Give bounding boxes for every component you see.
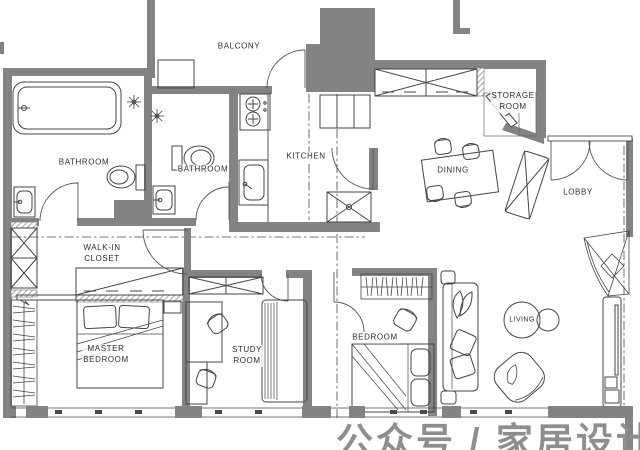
- tv-console: [603, 297, 621, 407]
- door-entrance-left: [551, 141, 590, 180]
- living-sofa: [441, 271, 478, 404]
- wall-column-shaft-b: [306, 44, 322, 92]
- door-master-bathroom: [40, 182, 78, 221]
- door-entrance-right: [589, 141, 628, 180]
- study-daybed: [262, 300, 307, 402]
- coffee-table-large: [504, 302, 540, 338]
- dining-chair: [462, 142, 480, 160]
- bedroom-chair: [392, 306, 419, 333]
- master-bed: [77, 300, 163, 388]
- wall-lobby-right: [626, 138, 633, 237]
- walls: [0, 0, 633, 418]
- wall-left-top-tick: [0, 42, 4, 54]
- dining-wardrobe: [375, 69, 477, 96]
- plan-drawing: [0, 0, 640, 450]
- dining-table: [421, 150, 498, 202]
- storage-door-leaf: [486, 93, 517, 127]
- dash-dot-reference-lines: [12, 94, 624, 418]
- door-second-bathroom: [196, 182, 229, 220]
- door-balcony: [267, 50, 305, 88]
- refrigerator: [327, 192, 371, 222]
- sink-master: [14, 187, 35, 217]
- wall-bath-master-top: [3, 68, 149, 76]
- door-kitchen: [332, 148, 373, 190]
- kitchen-sink: [239, 160, 268, 205]
- wall-bath2-kitchen-top: [149, 86, 272, 94]
- study-chair: [195, 367, 218, 390]
- wall-closet-door-stub: [184, 228, 191, 270]
- wall-kitchen-bottom: [229, 222, 380, 232]
- hatch-storage-jamb: [477, 68, 484, 96]
- armchair: [489, 347, 550, 407]
- balcony-unit: [158, 60, 194, 88]
- wall-kitchen-left: [229, 88, 238, 230]
- bedroom-bed: [352, 344, 434, 412]
- wall-balcony-left: [147, 0, 155, 78]
- wall-bath-master-bottom-b: [77, 218, 115, 226]
- bedroom-hanger-rail: [361, 274, 432, 299]
- left-hanger-wardrobe: [11, 300, 37, 406]
- floor-plan: 公众号 / 家居设计案例 BALCONY BATHROOM BATHROOM K…: [0, 0, 640, 450]
- sink-second: [153, 186, 175, 214]
- shower-head-icon-master: [127, 95, 141, 109]
- wall-bedroom-right: [428, 268, 437, 416]
- hatch-left-lower: [11, 290, 37, 297]
- study-wardrobe: [189, 277, 263, 294]
- toilet-master: [107, 165, 145, 190]
- bottom-wall-blocks: [26, 406, 633, 450]
- door-study-room: [261, 274, 288, 301]
- tv-shelf-unit: [584, 231, 629, 296]
- walkin-wardrobe: [76, 268, 183, 295]
- wall-column-shaft-a: [320, 8, 375, 92]
- shoe-cabinet: [505, 151, 550, 220]
- wall-top-outside-stub2: [453, 28, 470, 34]
- kitchen-upper-cabinet: [320, 95, 370, 128]
- furniture: [11, 60, 629, 412]
- study-chair: [205, 311, 230, 336]
- wall-bath-chunk: [114, 200, 152, 226]
- nightstand: [164, 301, 181, 313]
- study-desk: [186, 302, 222, 404]
- dining-chair: [454, 191, 472, 209]
- stove: [240, 94, 270, 130]
- door-bedroom: [334, 272, 364, 332]
- bathtub: [13, 82, 121, 134]
- dining-chair: [434, 137, 452, 155]
- toilet-second: [172, 146, 214, 170]
- wall-dining-top: [370, 60, 545, 69]
- wall-storage-right: [536, 60, 546, 138]
- wall-kitchen-dining-stub: [369, 148, 378, 190]
- hatch-left-upper: [11, 222, 37, 228]
- shower-head-icon-second: [150, 109, 164, 123]
- wall-bath2-bottom: [149, 218, 196, 226]
- wall-bedroom-top: [352, 268, 434, 276]
- lobby-entrance-frame: [548, 136, 632, 141]
- hatch-strips: [11, 68, 484, 302]
